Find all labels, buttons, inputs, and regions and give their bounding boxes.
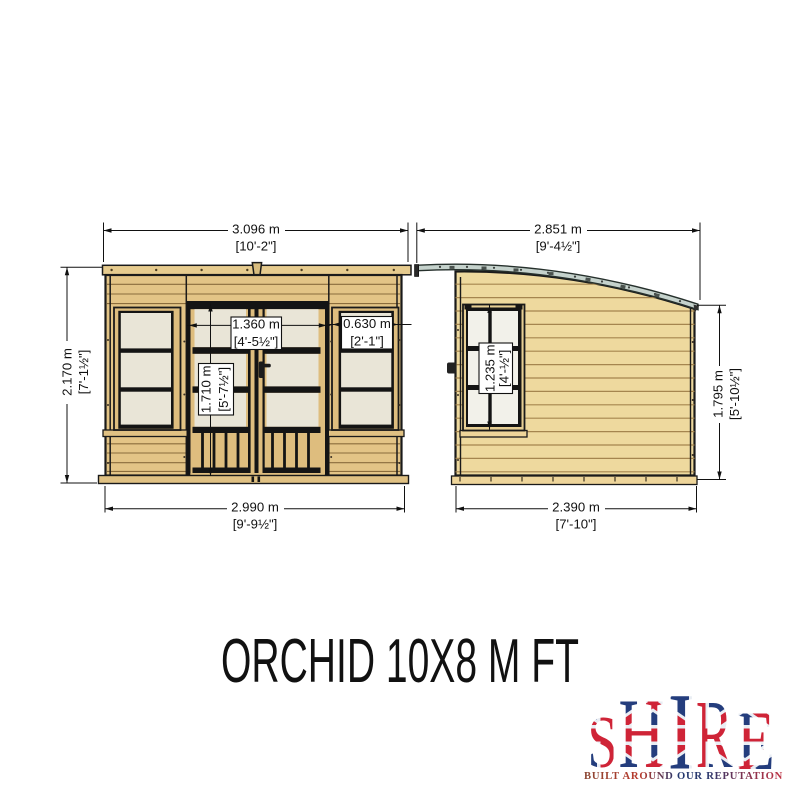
svg-text:2.170 m: 2.170 m [60,348,75,396]
svg-text:[5'-10½"]: [5'-10½"] [727,368,742,420]
svg-text:[4'-5½"]: [4'-5½"] [234,334,279,349]
svg-text:1.360 m: 1.360 m [232,317,280,332]
svg-text:0.630 m: 0.630 m [343,316,391,331]
svg-text:1.235 m: 1.235 m [483,344,498,392]
svg-text:1.710 m: 1.710 m [199,365,214,413]
svg-text:[10'-2"]: [10'-2"] [236,238,277,253]
svg-text:ORCHID 10X8 M FT: ORCHID 10X8 M FT [221,627,579,696]
svg-text:[7'-1½"]: [7'-1½"] [76,350,91,395]
svg-text:1.795 m: 1.795 m [711,370,726,418]
svg-text:[9'-9½"]: [9'-9½"] [233,517,278,532]
svg-text:2.390 m: 2.390 m [552,500,600,515]
svg-text:[2'-1"]: [2'-1"] [350,334,384,349]
svg-text:2.990 m: 2.990 m [231,500,279,515]
svg-text:[4'-½"]: [4'-½"] [497,350,512,387]
svg-text:[5'-7½"]: [5'-7½"] [216,367,231,412]
svg-text:2.851 m: 2.851 m [534,222,582,237]
svg-text:3.096 m: 3.096 m [232,222,280,237]
svg-text:[9'-4½"]: [9'-4½"] [536,238,581,253]
svg-text:[7'-10"]: [7'-10"] [556,517,597,532]
svg-text:BUILT AROUND OUR REPUTATION: BUILT AROUND OUR REPUTATION [584,770,783,782]
